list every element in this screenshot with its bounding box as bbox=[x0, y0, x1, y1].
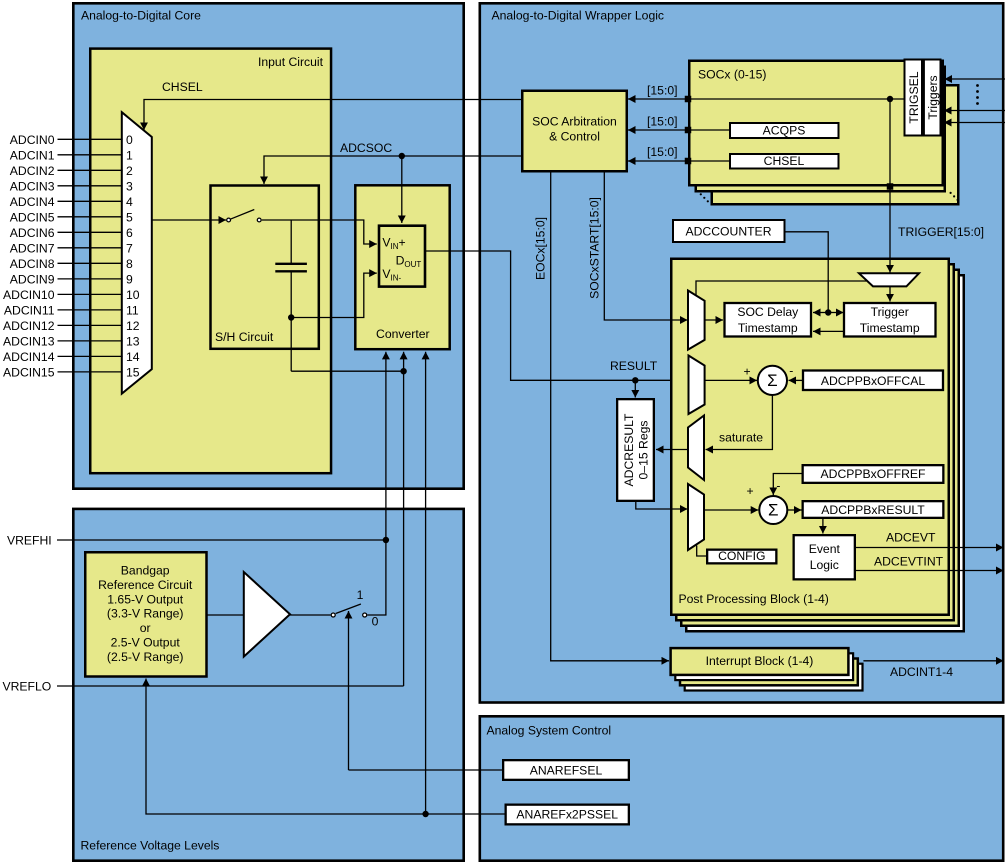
svg-text:8: 8 bbox=[126, 257, 133, 271]
svg-text:+: + bbox=[746, 484, 753, 498]
svg-text:Event: Event bbox=[809, 542, 841, 556]
svg-text:0–15 Regs: 0–15 Regs bbox=[637, 421, 651, 480]
svg-text:14: 14 bbox=[126, 350, 140, 364]
svg-text:Σ: Σ bbox=[767, 371, 778, 390]
svg-text:Post Processing Block (1-4): Post Processing Block (1-4) bbox=[679, 592, 829, 606]
svg-text:ADCIN13: ADCIN13 bbox=[3, 335, 55, 349]
svg-text:ADCRESULT: ADCRESULT bbox=[622, 413, 636, 486]
svg-text:Bandgap: Bandgap bbox=[121, 564, 170, 578]
svg-text:CHSEL: CHSEL bbox=[162, 80, 203, 94]
svg-text:ADCPPBxOFFREF: ADCPPBxOFFREF bbox=[821, 467, 926, 481]
svg-text:1: 1 bbox=[357, 588, 364, 602]
svg-text:VREFLO: VREFLO bbox=[3, 680, 52, 694]
svg-text:0: 0 bbox=[126, 133, 133, 147]
svg-text:SOC Delay: SOC Delay bbox=[737, 305, 799, 319]
svg-text:ADCSOC: ADCSOC bbox=[340, 141, 392, 155]
svg-text:ADCIN14: ADCIN14 bbox=[3, 350, 55, 364]
svg-text:ADCIN0: ADCIN0 bbox=[10, 133, 55, 147]
svg-text:Reference Circuit: Reference Circuit bbox=[98, 578, 193, 592]
svg-text:ADCIN7: ADCIN7 bbox=[10, 241, 55, 255]
svg-text:11: 11 bbox=[126, 304, 139, 318]
svg-text:ADCEVTINT: ADCEVTINT bbox=[874, 555, 944, 569]
svg-text:-: - bbox=[776, 479, 780, 493]
svg-text:(2.5-V Range): (2.5-V Range) bbox=[107, 650, 184, 664]
svg-text:5: 5 bbox=[126, 210, 133, 224]
svg-text:2.5-V Output: 2.5-V Output bbox=[111, 636, 181, 650]
svg-text:CONFIG: CONFIG bbox=[718, 549, 765, 563]
svg-text:1.65-V Output: 1.65-V Output bbox=[107, 592, 183, 606]
svg-text:Σ: Σ bbox=[768, 501, 779, 520]
svg-text:ADCIN5: ADCIN5 bbox=[10, 210, 55, 224]
svg-text:(3.3-V Range): (3.3-V Range) bbox=[107, 607, 184, 621]
svg-text:Analog-to-Digital Core: Analog-to-Digital Core bbox=[81, 9, 201, 23]
svg-text:or: or bbox=[140, 621, 151, 635]
svg-text:saturate: saturate bbox=[719, 431, 763, 445]
svg-text:ADCIN11: ADCIN11 bbox=[4, 304, 55, 318]
svg-text:ADCCOUNTER: ADCCOUNTER bbox=[686, 225, 772, 239]
svg-text:Reference Voltage Levels: Reference Voltage Levels bbox=[81, 839, 220, 853]
svg-text:ADCEVT: ADCEVT bbox=[886, 531, 936, 545]
svg-text:Timestamp: Timestamp bbox=[738, 321, 798, 335]
svg-text:0: 0 bbox=[372, 615, 379, 629]
svg-text:TRIGSEL: TRIGSEL bbox=[907, 71, 921, 123]
svg-text:ACQPS: ACQPS bbox=[763, 123, 806, 137]
svg-text:3: 3 bbox=[126, 179, 133, 193]
svg-text:SOC Arbitration: SOC Arbitration bbox=[532, 115, 617, 129]
svg-text:2: 2 bbox=[126, 164, 133, 178]
svg-text:Converter: Converter bbox=[376, 327, 430, 341]
svg-text:6: 6 bbox=[126, 226, 133, 240]
svg-text:+: + bbox=[743, 365, 750, 379]
svg-text:ADCIN2: ADCIN2 bbox=[10, 164, 55, 178]
svg-text:13: 13 bbox=[126, 335, 140, 349]
svg-text:ANAREFSEL: ANAREFSEL bbox=[530, 764, 603, 778]
svg-text:1: 1 bbox=[126, 148, 133, 162]
svg-text:SOCxSTART[15:0]: SOCxSTART[15:0] bbox=[588, 197, 602, 299]
svg-text:ADCIN10: ADCIN10 bbox=[3, 288, 55, 302]
svg-text:ADCIN4: ADCIN4 bbox=[10, 195, 55, 209]
svg-text:Triggers: Triggers bbox=[926, 75, 940, 119]
svg-text:ANAREFx2PSSEL: ANAREFx2PSSEL bbox=[516, 808, 618, 822]
svg-text:Interrupt Block (1-4): Interrupt Block (1-4) bbox=[706, 654, 814, 668]
svg-text:10: 10 bbox=[126, 288, 140, 302]
svg-text:SOCx (0-15): SOCx (0-15) bbox=[698, 68, 766, 82]
svg-text:[15:0]: [15:0] bbox=[647, 84, 678, 98]
svg-text:4: 4 bbox=[126, 195, 133, 209]
svg-text:Input Circuit: Input Circuit bbox=[258, 55, 324, 69]
svg-text:Analog-to-Digital Wrapper Logi: Analog-to-Digital Wrapper Logic bbox=[492, 9, 665, 23]
svg-text:S/H Circuit: S/H Circuit bbox=[215, 330, 274, 344]
svg-text:CHSEL: CHSEL bbox=[764, 154, 805, 168]
svg-text:ADCIN3: ADCIN3 bbox=[10, 179, 55, 193]
svg-text:& Control: & Control bbox=[549, 130, 600, 144]
svg-text:Logic: Logic bbox=[810, 558, 839, 572]
svg-text:VREFHI: VREFHI bbox=[7, 534, 52, 548]
svg-text:ADCIN1: ADCIN1 bbox=[10, 148, 55, 162]
svg-text:ADCPPBxOFFCAL: ADCPPBxOFFCAL bbox=[821, 374, 926, 388]
svg-text:ADCIN12: ADCIN12 bbox=[3, 319, 55, 333]
svg-text:12: 12 bbox=[126, 319, 140, 333]
svg-text:[15:0]: [15:0] bbox=[647, 115, 678, 129]
svg-text:Analog System Control: Analog System Control bbox=[487, 724, 612, 738]
svg-text:-: - bbox=[789, 364, 793, 378]
svg-text:RESULT: RESULT bbox=[610, 359, 658, 373]
svg-text:ADCINT1-4: ADCINT1-4 bbox=[890, 665, 953, 679]
svg-text:ADCIN15: ADCIN15 bbox=[3, 366, 55, 380]
svg-text:7: 7 bbox=[126, 241, 133, 255]
svg-text:ADCIN9: ADCIN9 bbox=[10, 273, 55, 287]
svg-text:9: 9 bbox=[126, 273, 133, 287]
svg-text:ADCIN8: ADCIN8 bbox=[10, 257, 55, 271]
svg-text:15: 15 bbox=[126, 366, 140, 380]
svg-text:[15:0]: [15:0] bbox=[647, 145, 678, 159]
svg-text:Trigger: Trigger bbox=[871, 305, 909, 319]
svg-text:TRIGGER[15:0]: TRIGGER[15:0] bbox=[898, 225, 984, 239]
svg-text:ADCPPBxRESULT: ADCPPBxRESULT bbox=[821, 503, 925, 517]
svg-text:Timestamp: Timestamp bbox=[860, 321, 920, 335]
svg-text:EOCx[15:0]: EOCx[15:0] bbox=[534, 217, 548, 280]
svg-text:ADCIN6: ADCIN6 bbox=[10, 226, 55, 240]
